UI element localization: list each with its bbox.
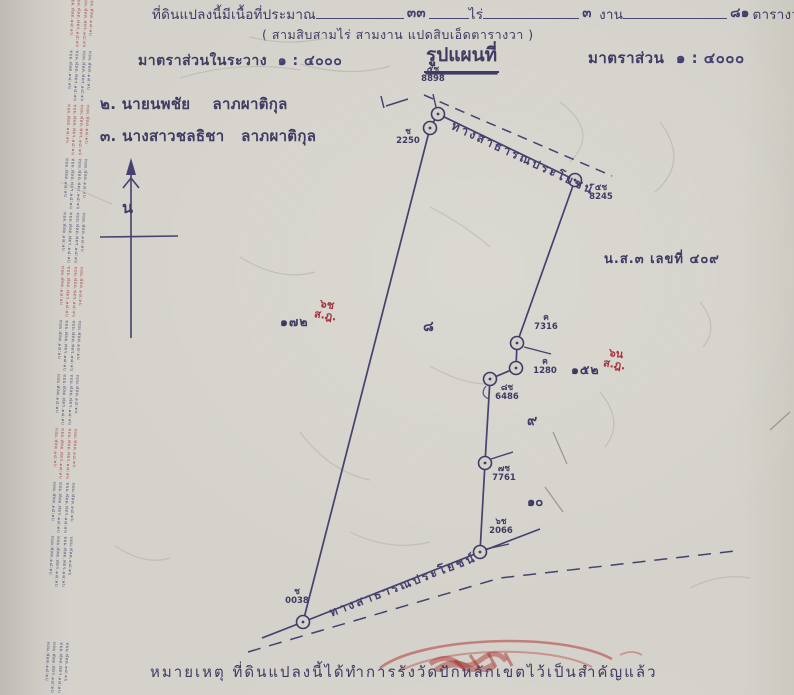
red-note-line2: ส.ฎ. (602, 357, 626, 371)
parcel-boundary (262, 114, 575, 638)
cadastral-map-drawing (0, 0, 794, 672)
marker-label-8245: ๕ช8245 (589, 184, 613, 202)
adjacent-parcel-number-left: ๑๗๒ (280, 312, 309, 332)
marker-number: 1280 (533, 367, 557, 376)
interior-number-9: ๙ (527, 410, 537, 432)
marker-number: 7316 (534, 323, 558, 332)
marker-number: 2066 (489, 527, 513, 536)
adjacent-parcel-red-note-right: ๖น ส.ฎ. (602, 346, 628, 371)
north-label: น (122, 196, 133, 221)
adjacent-parcel-number-right: ๑๕๒ (571, 360, 600, 380)
marker-label-0038: ช0038 (285, 588, 309, 606)
marker-number: 2250 (396, 137, 420, 146)
red-note-line2: ส.ฎ. (313, 308, 337, 322)
marker-number: 6486 (495, 393, 519, 402)
paper-wrinkles (60, 37, 750, 588)
scanned-land-deed-page: { "header": { "area_label": "ที่ดินแปลงน… (0, 0, 794, 672)
ns3-document-note: น.ส.๓ เลขที่ ๔๐๙ (604, 248, 720, 269)
bottom-edge-partial-text: หมายเหตุ ที่ดินแปลงนี้ได้ทำการรังวัดปักห… (150, 660, 790, 684)
interior-number-10: ๑๐ (527, 491, 543, 512)
adjacent-parcel-red-note-left: ๖ช ส.ฎ. (313, 297, 339, 322)
marker-label-2066: ๖ช2066 (489, 518, 513, 536)
marker-number: 8245 (589, 193, 613, 202)
north-arrow (100, 158, 178, 338)
pencil-marks (545, 412, 790, 512)
marker-label-7761: ๗ช7761 (492, 465, 516, 483)
marker-label-6486: ๘ช6486 (495, 384, 519, 402)
marker-number: 8898 (421, 75, 445, 84)
north-arrow-crossbar (100, 236, 178, 237)
marker-label-7316: ค7316 (534, 314, 558, 332)
marker-number: 7761 (492, 474, 516, 483)
marker-label-8898: ๕ช8898 (421, 66, 445, 84)
marker-label-2250: ช2250 (396, 128, 420, 146)
marker-number: 0038 (285, 597, 309, 606)
boundary-west (303, 128, 430, 622)
road-bottom-dashed-edge (248, 551, 735, 652)
north-arrow-tip (126, 158, 136, 175)
interior-number-8: ๘ (423, 316, 434, 338)
marker-label-1280: ค1280 (533, 358, 557, 376)
